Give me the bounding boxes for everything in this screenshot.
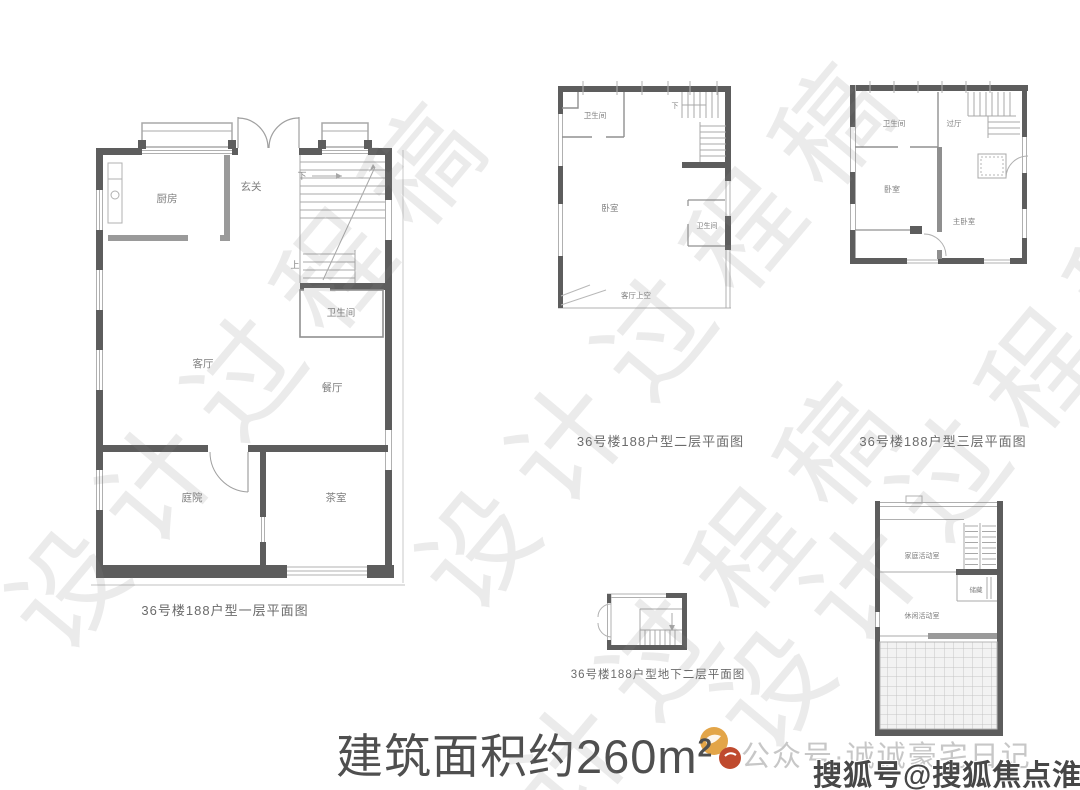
stairs-up-label: 上 xyxy=(290,260,299,270)
floor3-inner-walls xyxy=(855,147,1028,259)
floor1-stairs xyxy=(300,155,385,283)
building-area-text: 建筑面积约260m2 xyxy=(336,718,713,787)
floor1-plan: 厨房 玄关 下 上 卫生间 客厅 餐厅 庭院 茶室 xyxy=(88,115,408,590)
room-label-bathroom: 卫生间 xyxy=(327,307,356,319)
floor1-caption: 36号楼188户型一层平面图 xyxy=(75,600,375,619)
area-superscript: 2 xyxy=(698,732,713,762)
room-label-dining: 餐厅 xyxy=(322,381,343,394)
area-label: 建筑面积约260m xyxy=(336,730,698,783)
room-label-storage: 储藏 xyxy=(970,585,984,594)
basement2-walls xyxy=(598,593,687,650)
room-label-master: 主卧室 xyxy=(953,216,976,226)
room-label-bedroom: 卧室 xyxy=(601,203,619,213)
basement1-stairs xyxy=(964,523,996,571)
basement1-plan: 家庭活动室 储藏 休闲活动室 xyxy=(868,496,1013,741)
floor2-plan: 卫生间 下 卧室 卫生间 客厅上空 xyxy=(548,78,773,318)
basement1-mid-wall xyxy=(928,633,997,639)
room-label-foyer: 玄关 xyxy=(241,180,262,193)
basement1-room-labels: 家庭活动室 储藏 休闲活动室 xyxy=(905,551,984,620)
floor3-stairs xyxy=(968,92,1020,138)
basement1-inner-walls xyxy=(880,572,997,636)
room-label-hall: 过厅 xyxy=(947,118,962,128)
floor2-room-labels: 卫生间 下 卧室 卫生间 客厅上空 xyxy=(584,102,718,300)
room-label-bathroom: 卫生间 xyxy=(883,118,906,128)
floorplan-sheet: 设计过程稿 设计过程稿 设计过程稿 设计过程稿 xyxy=(0,0,1080,790)
terrace-grid-area xyxy=(880,642,997,729)
room-label-bedroom: 卧室 xyxy=(884,184,900,194)
room-label-leisure: 休闲活动室 xyxy=(905,611,940,620)
basement2-plan xyxy=(598,583,748,668)
room-label-bathroom: 卫生间 xyxy=(697,221,718,230)
void-note-label: 客厅上空 xyxy=(621,290,651,300)
basement2-stairs xyxy=(640,609,682,645)
floor3-room-labels: 卫生间 过厅 卧室 主卧室 xyxy=(883,118,976,226)
room-label-kitchen: 厨房 xyxy=(157,192,178,205)
room-label-family: 家庭活动室 xyxy=(905,551,940,560)
floor2-stairs xyxy=(682,92,726,162)
entry-double-door xyxy=(238,117,299,148)
room-label-courtyard: 庭院 xyxy=(182,491,203,504)
room-label-living: 客厅 xyxy=(193,357,214,370)
floor2-void-leaders xyxy=(561,285,606,305)
floor1-mid-wall xyxy=(103,445,388,492)
floor3-caption: 36号楼188户型三层平面图 xyxy=(843,431,1043,450)
room-label-bathroom: 卫生间 xyxy=(584,110,607,120)
basement2-caption: 36号楼188户型地下二层平面图 xyxy=(558,666,758,682)
floor2-stair-wall xyxy=(682,162,731,168)
floor2-caption: 36号楼188户型二层平面图 xyxy=(548,431,773,450)
floor1-courtyard-divider xyxy=(260,452,266,565)
stairs-down-label: 下 xyxy=(297,171,306,181)
basement1-stair-wall xyxy=(956,569,997,575)
floor3-plan: 卫生间 过厅 卧室 主卧室 xyxy=(842,80,1042,275)
sohu-watermark: 搜狐号@搜狐焦点淮南站 xyxy=(813,752,1080,790)
room-label-tearoom: 茶室 xyxy=(326,491,347,504)
stairs-down-label: 下 xyxy=(672,102,679,110)
